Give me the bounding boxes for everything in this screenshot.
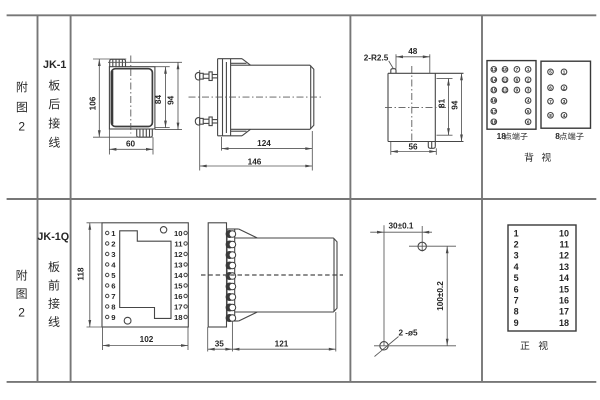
svg-text:17: 17 — [559, 307, 569, 317]
svg-text:10: 10 — [502, 67, 508, 72]
svg-text:106: 106 — [88, 96, 97, 110]
svg-text:14: 14 — [491, 77, 497, 82]
svg-text:13: 13 — [174, 260, 183, 269]
svg-text:8: 8 — [555, 131, 560, 141]
svg-text:9: 9 — [111, 313, 115, 322]
svg-text:4: 4 — [514, 262, 519, 272]
svg-text:102: 102 — [140, 335, 154, 344]
svg-text:2 -ø5: 2 -ø5 — [398, 328, 418, 337]
svg-text:2: 2 — [18, 306, 25, 320]
svg-text:2: 2 — [514, 240, 519, 250]
svg-text:JK-1Q: JK-1Q — [37, 231, 69, 243]
svg-text:17: 17 — [491, 109, 497, 114]
svg-text:81: 81 — [438, 98, 447, 108]
svg-text:84: 84 — [154, 95, 163, 105]
svg-text:18: 18 — [174, 313, 183, 322]
svg-text:118: 118 — [76, 267, 85, 281]
svg-text:60: 60 — [126, 140, 136, 149]
svg-text:17: 17 — [174, 302, 183, 311]
svg-text:8: 8 — [514, 307, 519, 317]
svg-text:35: 35 — [215, 339, 225, 348]
svg-text:56: 56 — [408, 142, 418, 151]
svg-text:1: 1 — [514, 228, 519, 238]
svg-text:94: 94 — [167, 95, 176, 105]
svg-text:2-R2.5: 2-R2.5 — [364, 53, 389, 62]
svg-text:11: 11 — [174, 239, 183, 248]
svg-text:11: 11 — [503, 77, 508, 82]
svg-text:15: 15 — [491, 88, 497, 93]
svg-text:18: 18 — [559, 318, 569, 328]
svg-text:124: 124 — [257, 139, 271, 148]
svg-text:12: 12 — [502, 88, 508, 93]
svg-text:3: 3 — [111, 250, 115, 259]
svg-text:10: 10 — [174, 229, 183, 238]
svg-text:7: 7 — [514, 296, 519, 306]
svg-text:4: 4 — [111, 260, 116, 269]
svg-text:JK-1: JK-1 — [43, 59, 66, 71]
svg-text:3: 3 — [514, 251, 519, 261]
svg-text:48: 48 — [408, 47, 418, 56]
svg-text:12: 12 — [559, 251, 569, 261]
svg-text:16: 16 — [559, 296, 569, 306]
svg-text:16: 16 — [174, 292, 183, 301]
svg-text:9: 9 — [514, 318, 519, 328]
svg-text:5: 5 — [514, 273, 519, 283]
svg-text:15: 15 — [559, 284, 569, 294]
svg-text:2: 2 — [18, 120, 25, 134]
svg-text:1: 1 — [111, 229, 116, 238]
svg-text:18: 18 — [491, 119, 497, 124]
svg-text:30±0.1: 30±0.1 — [389, 222, 414, 231]
svg-text:121: 121 — [275, 339, 289, 348]
svg-text:11: 11 — [559, 240, 569, 250]
svg-text:16: 16 — [491, 98, 497, 103]
svg-text:5: 5 — [111, 271, 116, 280]
svg-text:13: 13 — [491, 67, 497, 72]
svg-text:7: 7 — [111, 292, 115, 301]
svg-text:8: 8 — [111, 302, 116, 311]
svg-text:6: 6 — [111, 281, 115, 290]
svg-text:100±0.2: 100±0.2 — [436, 281, 445, 311]
svg-text:15: 15 — [174, 281, 183, 290]
svg-text:2: 2 — [111, 239, 115, 248]
svg-text:12: 12 — [174, 250, 183, 259]
svg-text:6: 6 — [514, 284, 519, 294]
svg-text:14: 14 — [174, 271, 183, 280]
svg-text:14: 14 — [559, 273, 569, 283]
svg-text:94: 94 — [451, 100, 460, 110]
svg-text:146: 146 — [248, 157, 262, 166]
svg-text:13: 13 — [559, 262, 569, 272]
svg-text:10: 10 — [559, 228, 569, 238]
